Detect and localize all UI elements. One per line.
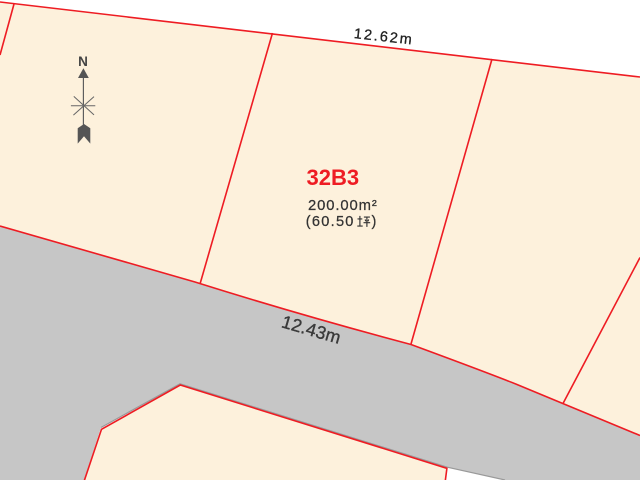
svg-text:N: N xyxy=(78,54,88,69)
svg-text:): ) xyxy=(372,214,377,230)
svg-text:200.00m²: 200.00m² xyxy=(308,198,378,214)
svg-text:(60.50: (60.50 xyxy=(306,214,355,230)
svg-text:32B3: 32B3 xyxy=(307,165,360,190)
